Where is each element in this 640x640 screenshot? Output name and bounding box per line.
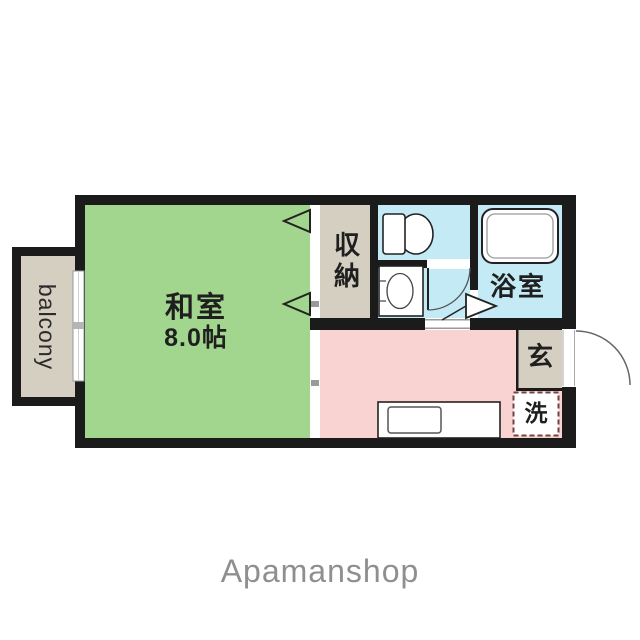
sliding-door-divider	[311, 380, 319, 386]
genkan-label: 玄	[527, 342, 553, 371]
washbasin-icon	[379, 266, 423, 316]
sliding-door-divider	[311, 301, 319, 307]
laundry-label: 洗	[525, 401, 548, 427]
kitchen-counter-icon	[378, 402, 500, 438]
toilet-door-opening	[427, 259, 470, 269]
genkan-wall-bottom	[516, 388, 562, 391]
washitsu-name: 和室	[164, 292, 228, 324]
bathtub-icon	[482, 209, 558, 263]
bathroom-label: 浴室	[490, 272, 546, 301]
threshold-line	[425, 328, 470, 330]
floor-plan	[0, 0, 640, 640]
toilet-icon	[383, 214, 433, 254]
washitsu-label: 和室 8.0帖	[164, 292, 228, 352]
brand-text: Apamanshop	[221, 554, 420, 590]
balcony-label: balcony	[33, 284, 59, 370]
threshold-line	[425, 319, 470, 321]
floor-plan-page: 和室 8.0帖 balcony 収納 浴室 玄 洗 Apamanshop	[0, 0, 640, 640]
entrance-door-arc	[576, 331, 630, 385]
washitsu-size: 8.0帖	[164, 324, 228, 352]
window-divider	[73, 322, 84, 329]
genkan-wall-left	[516, 330, 519, 391]
closet-label: 収納	[330, 231, 359, 293]
entrance-door	[562, 329, 576, 387]
